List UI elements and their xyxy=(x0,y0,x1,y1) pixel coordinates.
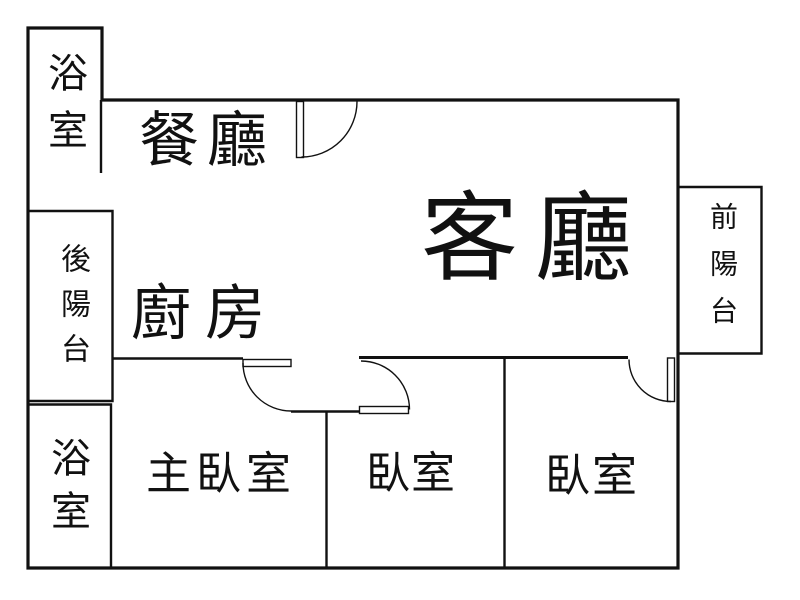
floor-plan-canvas xyxy=(0,0,800,600)
room-label-bathroom-bottom: 浴室 xyxy=(47,437,87,543)
room-label-bathroom-top: 浴室 xyxy=(44,52,84,166)
door-swing-icon-dining-entry xyxy=(297,102,358,158)
room-label-back-balcony: 後陽台 xyxy=(57,243,87,378)
room-label-kitchen: 廚房 xyxy=(131,284,279,344)
floor-plan: 浴室 餐廳 後陽台 廚房 客廳 前陽台 浴室 主臥室 臥室 臥室 xyxy=(0,0,800,600)
door-swing-icon-bedroom-middle xyxy=(360,361,410,414)
door-swing-icon-master-bedroom xyxy=(243,360,291,412)
room-label-master-bedroom: 主臥室 xyxy=(146,451,296,496)
door-swing-icon-bedroom-right xyxy=(629,358,675,402)
room-label-dining-room: 餐廳 xyxy=(139,111,275,171)
room-label-front-balcony: 前陽台 xyxy=(708,202,736,343)
room-label-bedroom-middle: 臥室 xyxy=(366,452,456,496)
room-label-living-room: 客廳 xyxy=(421,190,649,287)
room-label-bedroom-right: 臥室 xyxy=(545,453,639,498)
